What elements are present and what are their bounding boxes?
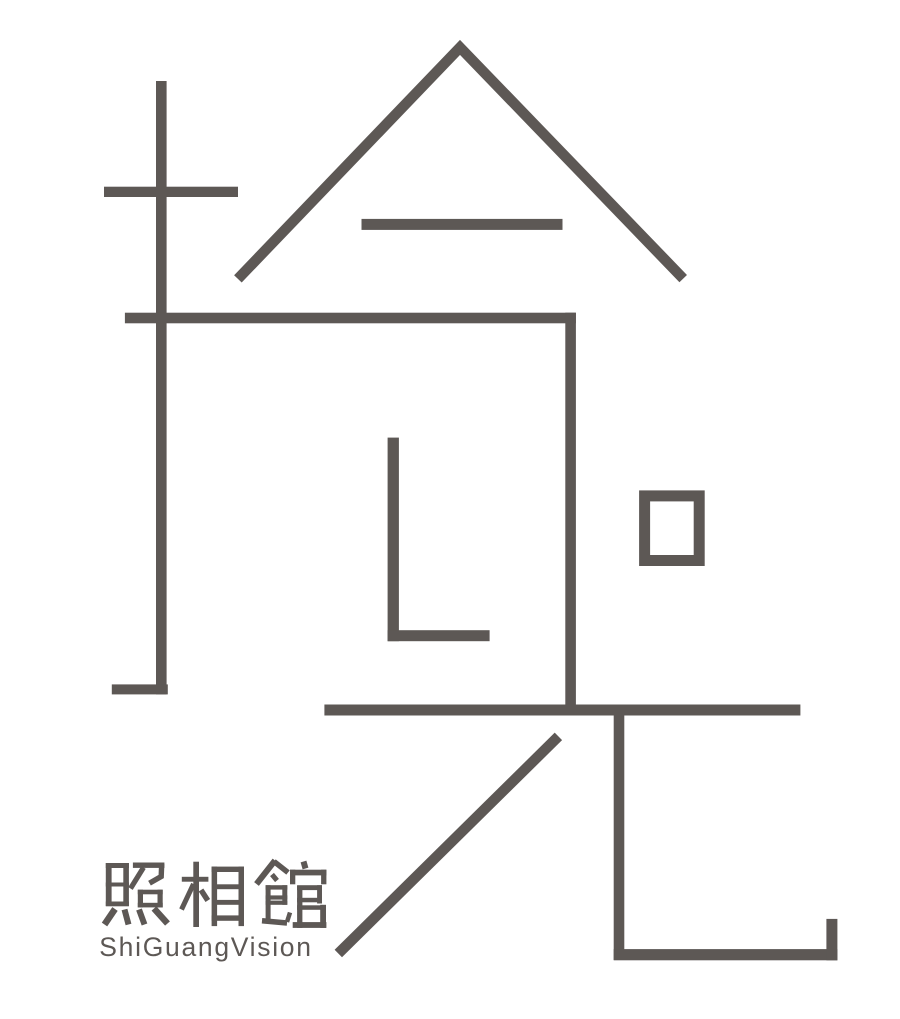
svg-text:ShiGuangVision: ShiGuangVision [99, 932, 312, 962]
